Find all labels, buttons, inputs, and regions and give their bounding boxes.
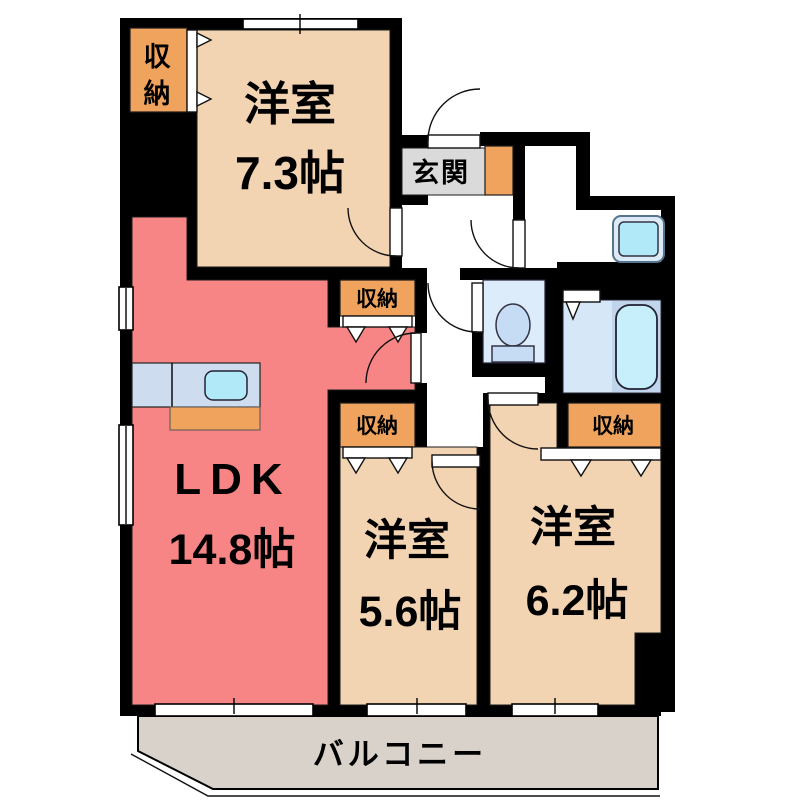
- bathtub: [616, 305, 657, 389]
- label-western-6-2-name: 洋室: [530, 504, 616, 552]
- label-storage-topleft-1: 収: [144, 42, 172, 72]
- entry-door: [428, 135, 480, 148]
- entrance-step: [485, 146, 513, 195]
- floor-plan: 洋室 7.3帖 LDK 14.8帖 洋室 5.6帖 洋室 6.2帖 玄関 収納 …: [0, 0, 800, 800]
- label-storage-5-6: 収納: [356, 414, 398, 438]
- washing-machine-pan: [613, 216, 664, 262]
- label-western-6-2-size: 6.2帖: [526, 577, 629, 625]
- label-balcony: バルコニー: [313, 737, 487, 772]
- label-storage-topleft-2: 納: [144, 78, 171, 109]
- storage-top-left-door: [187, 30, 197, 112]
- toilet-bowl: [496, 304, 530, 346]
- stove-area: [170, 407, 260, 430]
- label-ldk-size: 14.8帖: [169, 526, 296, 574]
- label-western-5-6-size: 5.6帖: [359, 588, 462, 636]
- label-entrance: 玄関: [412, 157, 470, 188]
- floor-plan-drawing: 洋室 7.3帖 LDK 14.8帖 洋室 5.6帖 洋室 6.2帖 玄関 収納 …: [0, 0, 800, 800]
- toilet-tank: [492, 346, 534, 362]
- bathroom: [563, 290, 661, 393]
- kitchen-sink: [205, 371, 247, 400]
- label-ldk-name: LDK: [174, 455, 291, 504]
- room-western-5-6: [340, 447, 477, 705]
- toilet-room: [428, 280, 545, 363]
- label-storage-6-2: 収納: [592, 414, 634, 438]
- label-western-7-3-name: 洋室: [244, 78, 336, 130]
- label-western-7-3-size: 7.3帖: [235, 147, 345, 199]
- label-storage-ldk: 収納: [356, 287, 398, 311]
- label-western-5-6-name: 洋室: [364, 517, 450, 565]
